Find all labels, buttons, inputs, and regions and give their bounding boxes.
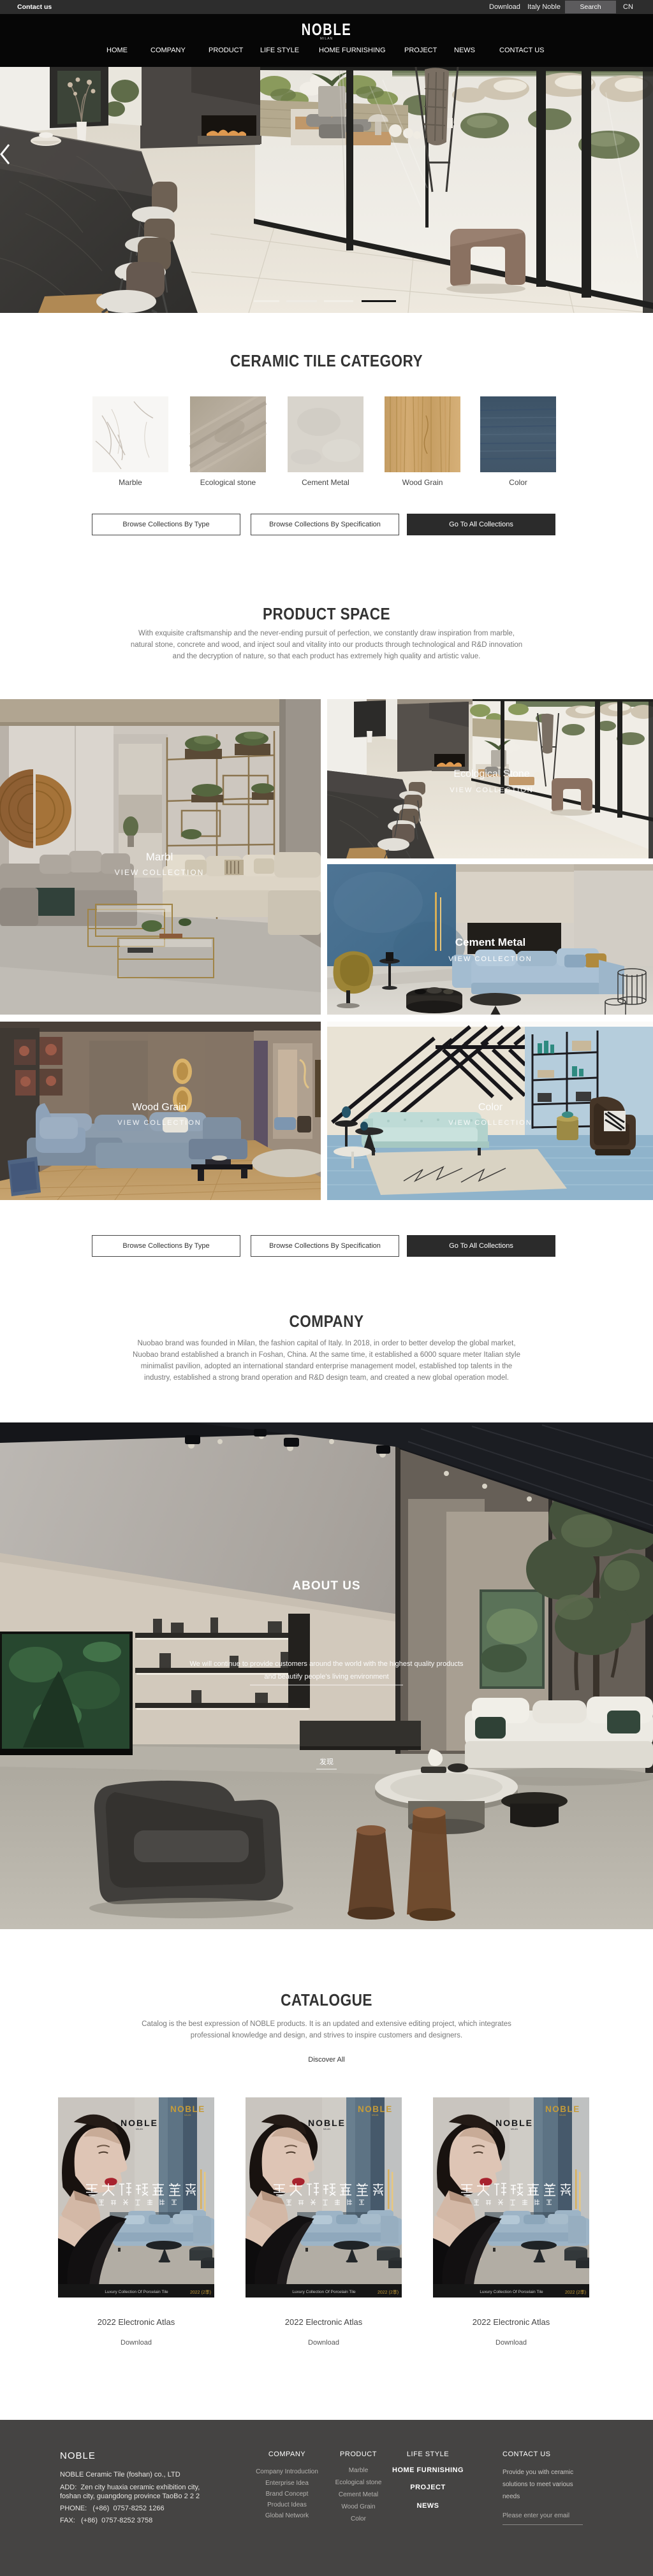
svg-text:Wood Grain: Wood Grain — [132, 1102, 186, 1113]
svg-text:Cement Metal: Cement Metal — [455, 936, 526, 948]
svg-text:Color: Color — [478, 1102, 503, 1113]
svg-text:VIEW COLLECTION: VIEW COLLECTION — [448, 955, 532, 963]
svg-text:ABOUT US: ABOUT US — [292, 1579, 360, 1593]
svg-text:VIEW COLLECTION: VIEW COLLECTION — [115, 868, 205, 877]
svg-text:We will continue to provide cu: We will continue to provide customers ar… — [189, 1660, 464, 1668]
svg-text:发现: 发现 — [319, 1757, 334, 1766]
svg-text:and beautify people's living e: and beautify people's living environment — [264, 1673, 388, 1681]
svg-text:Marbl: Marbl — [146, 851, 173, 863]
svg-text:VIEW COLLECTION: VIEW COLLECTION — [117, 1119, 201, 1127]
svg-text:VIEW COLLECTION: VIEW COLLECTION — [450, 786, 533, 794]
svg-text:Ecological Stone: Ecological Stone — [453, 769, 529, 779]
svg-text:VIEW COLLECTION: VIEW COLLECTION — [448, 1119, 532, 1127]
